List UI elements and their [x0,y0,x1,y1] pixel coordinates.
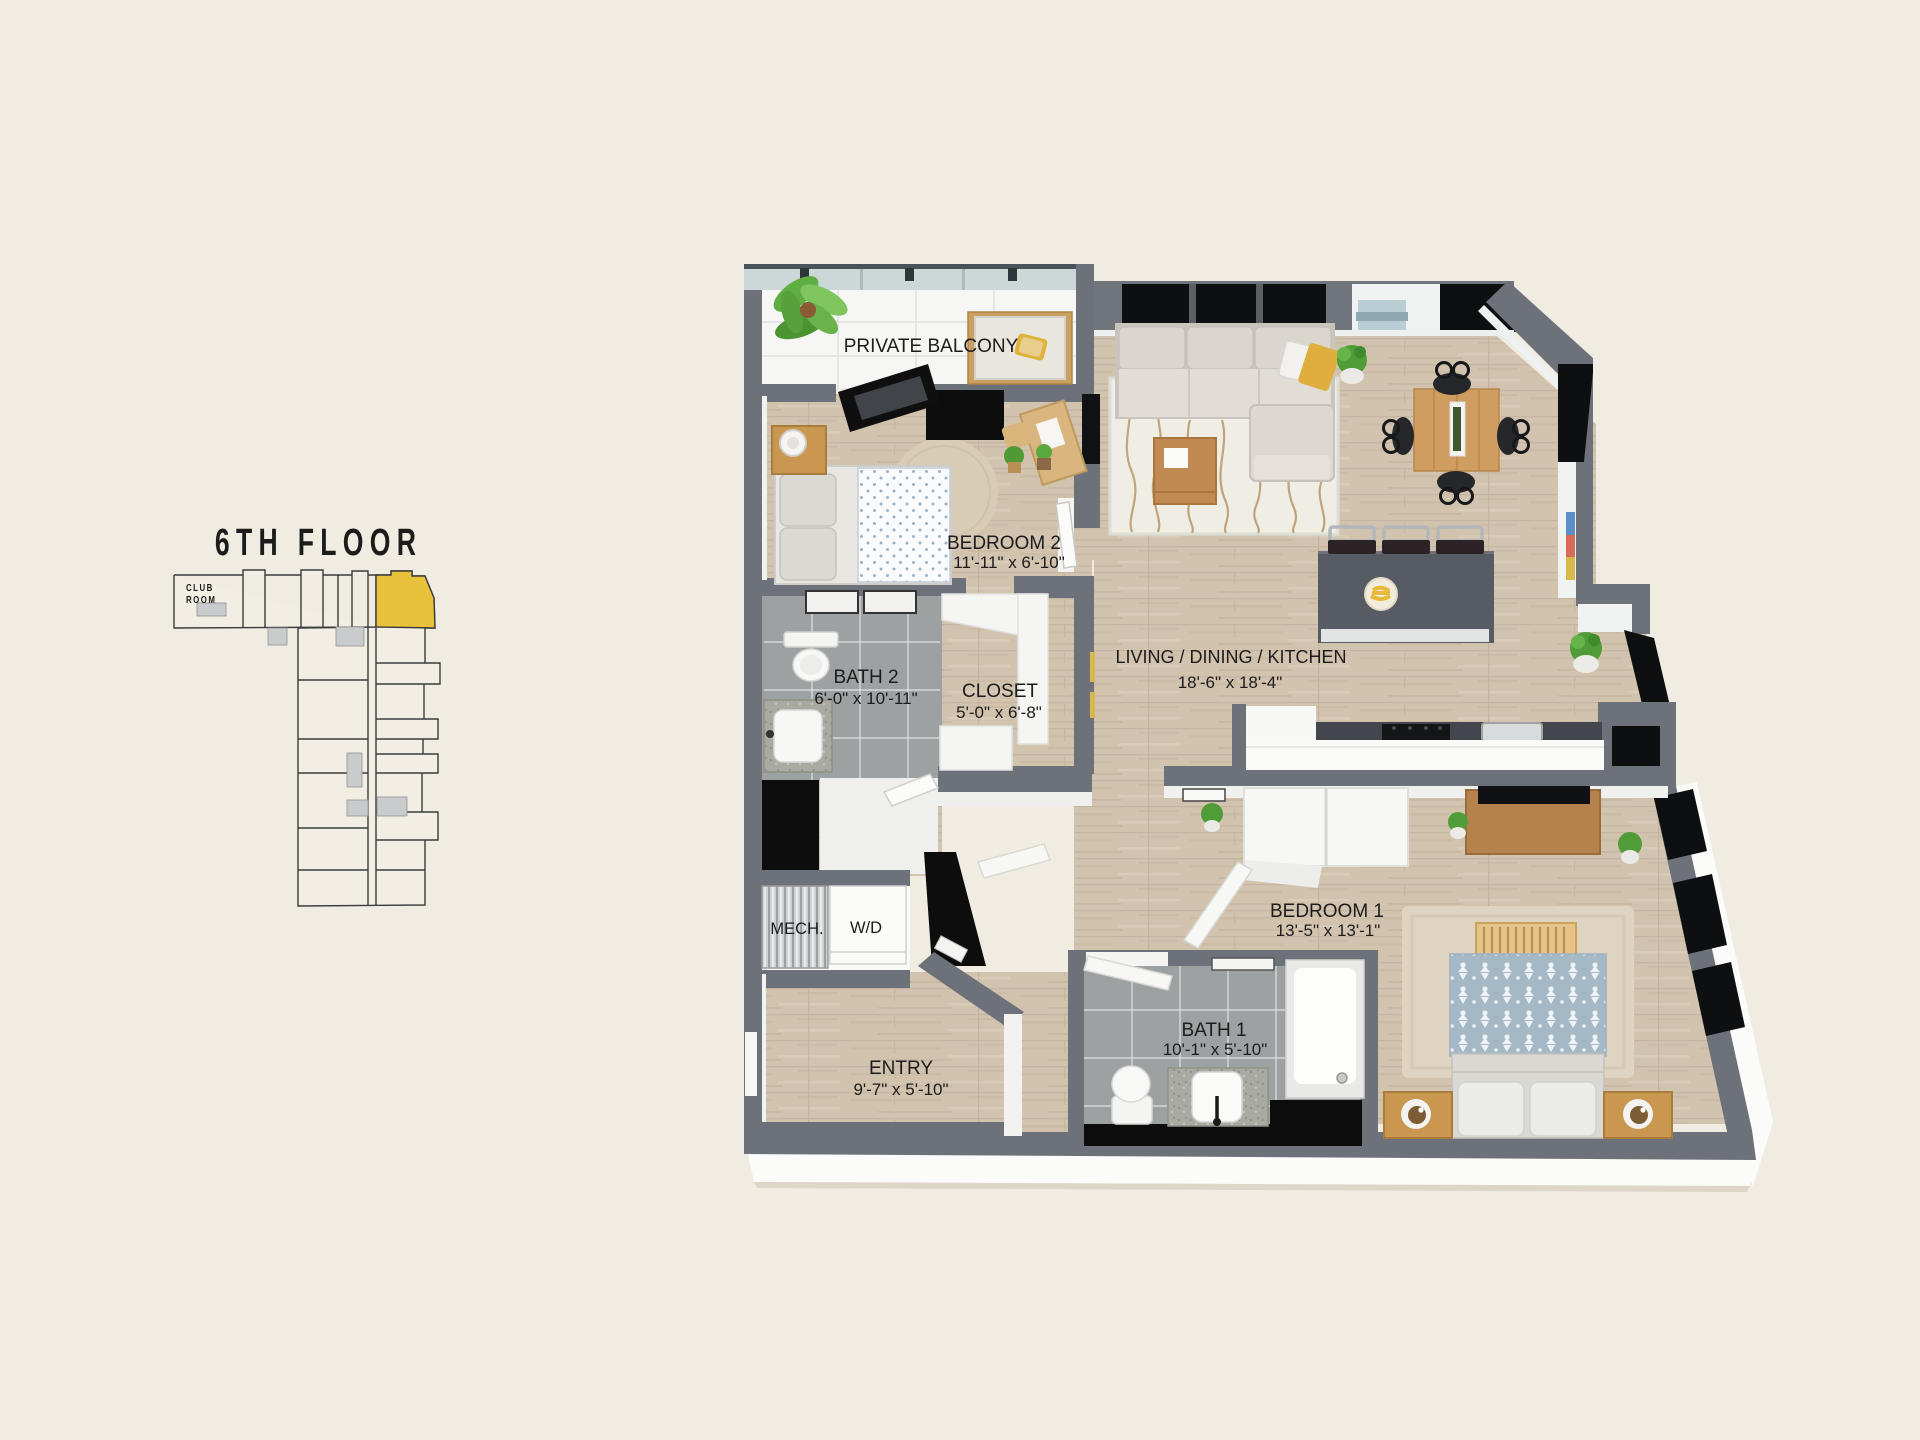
svg-text:CLOSET: CLOSET [962,681,1038,702]
svg-text:W/D: W/D [850,919,882,937]
svg-text:PRIVATE BALCONY: PRIVATE BALCONY [844,336,1019,357]
svg-text:ENTRY: ENTRY [869,1058,933,1079]
svg-text:13'-5" x 13'-1": 13'-5" x 13'-1" [1276,921,1381,940]
svg-text:LIVING / DINING / KITCHEN: LIVING / DINING / KITCHEN [1115,647,1346,667]
svg-text:BATH 2: BATH 2 [833,667,898,688]
svg-text:11'-11" x 6'-10": 11'-11" x 6'-10" [953,553,1065,572]
svg-text:BEDROOM 1: BEDROOM 1 [1270,901,1384,922]
svg-text:CLUB: CLUB [186,582,214,593]
svg-text:9'-7" x 5'-10": 9'-7" x 5'-10" [853,1080,948,1099]
svg-text:10'-1" x 5'-10": 10'-1" x 5'-10" [1163,1040,1268,1059]
svg-text:MECH.: MECH. [770,920,823,938]
svg-text:BATH 1: BATH 1 [1181,1020,1246,1041]
svg-text:18'-6" x 18'-4": 18'-6" x 18'-4" [1178,673,1283,692]
svg-text:BEDROOM 2: BEDROOM 2 [947,533,1061,554]
svg-text:6'-0" x 10'-11": 6'-0" x 10'-11" [814,689,917,708]
svg-text:5'-0" x 6'-8": 5'-0" x 6'-8" [956,703,1042,722]
svg-text:ROOM: ROOM [186,594,216,605]
svg-text:6TH FLOOR: 6TH FLOOR [215,520,422,563]
